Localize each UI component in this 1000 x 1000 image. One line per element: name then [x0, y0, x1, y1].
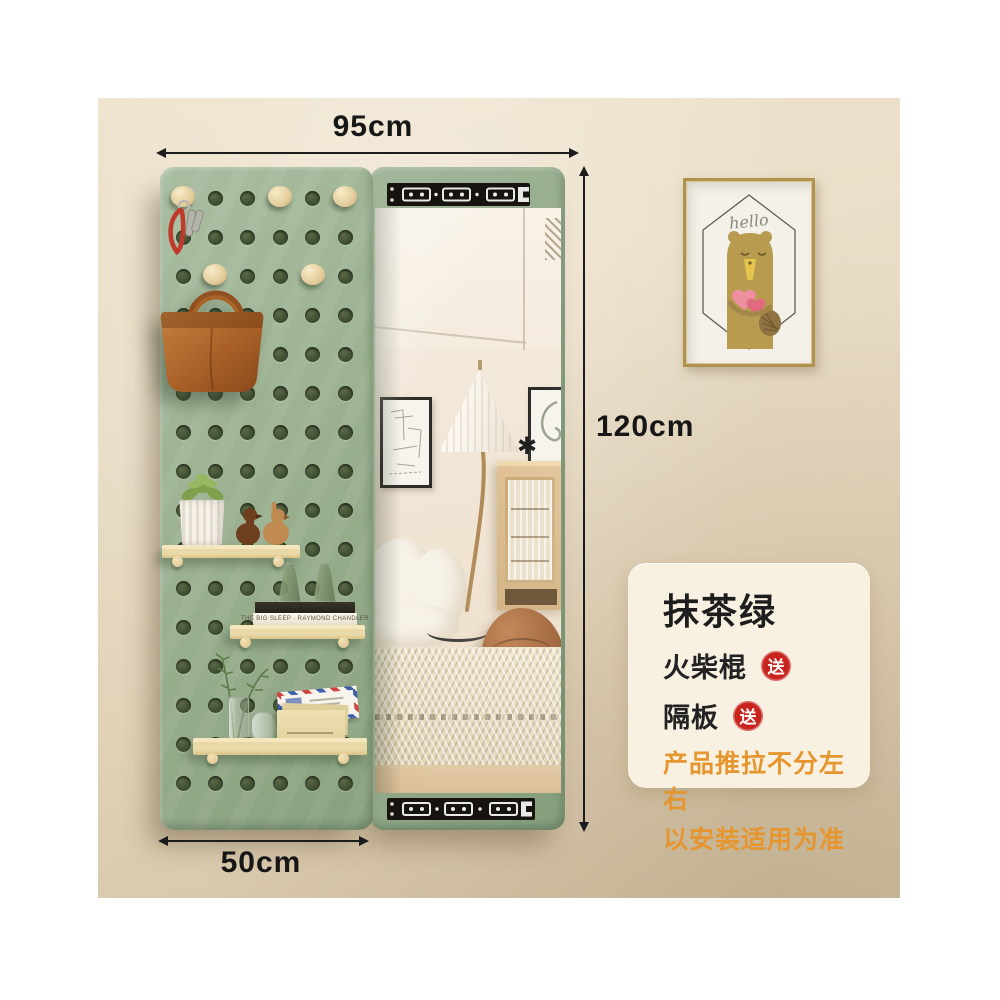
book-light: THE BIG SLEEP · RAYMOND CHANDLER: [253, 613, 357, 625]
book-dark: [255, 602, 355, 613]
dim-right-label: 120cm: [596, 410, 694, 444]
reflection-wall: [375, 348, 561, 648]
shelf-knob: [338, 753, 349, 764]
tall-glass-vase: [228, 697, 249, 740]
slide-rail-top: [387, 183, 530, 206]
shelf-knob: [338, 637, 349, 648]
keychain: [164, 198, 208, 260]
slide-rail-bottom: [387, 798, 537, 820]
hello-script-text: hello: [728, 210, 769, 233]
asterisk-decor-icon: ✱: [517, 432, 537, 461]
lamp-finial: [478, 360, 482, 370]
feature-row: 火柴棍 送: [663, 646, 870, 685]
bear-artwork: hello: [686, 181, 812, 364]
feature-label: 隔板: [663, 696, 719, 735]
cabinet-fluted-door: [505, 477, 555, 583]
page: { "annotations": { "top_width": "95cm", …: [0, 0, 1000, 1000]
pegboard-cast-shadow: [375, 208, 401, 793]
product-photo: ✱: [98, 98, 900, 898]
dim-right-arrow: [583, 168, 585, 830]
sketch-lines: [383, 400, 429, 485]
chair-base-arc: [427, 622, 489, 642]
arrowhead-right-icon: [569, 148, 579, 158]
book-spine-label: THE BIG SLEEP · RAYMOND CHANDLER: [241, 616, 369, 622]
arrowhead-up-icon: [579, 166, 589, 176]
shelf-knob: [207, 753, 218, 764]
reflection-armchair: [375, 526, 475, 650]
dim-top-arrow: [158, 152, 577, 154]
planter-pot: [178, 500, 226, 545]
feature-label: 火柴棍: [663, 646, 747, 685]
dim-bottom-label: 50cm: [198, 846, 324, 880]
reflection-art-frame-right: [528, 387, 561, 467]
reflection-art-frame-left: [380, 397, 432, 488]
address-line: [287, 732, 333, 734]
reflection-ceiling: [375, 208, 561, 358]
note-line: 以安装适用为准: [663, 820, 870, 856]
reflection-wood-floor: [375, 765, 561, 793]
info-card: 抹茶绿 火柴棍 送 隔板 送 产品推拉不分左右 以安装适用为准: [628, 563, 870, 788]
gift-badge: 送: [761, 651, 791, 681]
arrowhead-left-icon: [158, 836, 168, 846]
cabinet-shelf-line: [511, 560, 549, 562]
leather-bag: [158, 284, 266, 396]
gift-badge: 送: [733, 701, 763, 731]
ac-vent-icon: [545, 218, 561, 260]
reflection-wall-corner: [523, 208, 525, 350]
succulent-plant: [172, 470, 232, 506]
floor-lamp-pole: [455, 452, 495, 612]
carpet-edge-band: [375, 714, 561, 720]
reflection-cabinet: [497, 461, 561, 610]
duck-figurines: [234, 502, 292, 546]
reflection-ceiling-edge: [375, 326, 526, 344]
arrowhead-down-icon: [579, 822, 589, 832]
cabinet-shelf-line: [511, 536, 549, 538]
cabinet-open-niche: [505, 589, 557, 605]
shelf-knob: [273, 556, 284, 567]
feature-row: 隔板 送: [663, 696, 870, 735]
shelf-knob: [240, 637, 251, 648]
reflection-leather-pouf: [481, 608, 561, 714]
reflection-carpet: [375, 647, 561, 765]
wall-art-frame: hello: [683, 178, 815, 367]
mirror-glass: ✱: [375, 208, 561, 793]
dim-top-label: 95cm: [298, 110, 448, 144]
shelf-knob: [172, 556, 183, 567]
dim-bottom-arrow: [160, 840, 367, 842]
cabinet-shelf-line: [511, 508, 549, 510]
address-line: [310, 697, 344, 701]
arrowhead-left-icon: [156, 148, 166, 158]
note-line: 产品推拉不分左右: [663, 744, 870, 816]
color-title: 抹茶绿: [663, 583, 870, 635]
curve-art: [531, 390, 561, 464]
arrowhead-right-icon: [359, 836, 369, 846]
floor-lamp-shade: [439, 370, 519, 452]
